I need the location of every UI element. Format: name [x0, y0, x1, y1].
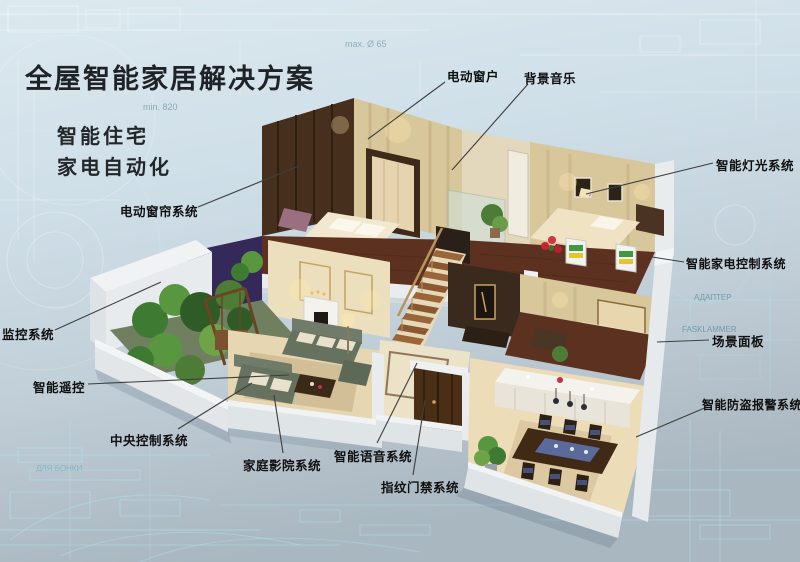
callout-background-music: 背景音乐 [524, 68, 576, 87]
callout-smart-remote: 智能遥控 [33, 377, 85, 396]
watermark-max: max. Ø 65 [345, 39, 387, 49]
framed-art [475, 285, 495, 319]
callout-burglar-alarm: 智能防盗报警系统 [702, 396, 800, 413]
potted-plant [552, 346, 568, 362]
page-title: 全屋智能家居解决方案 [25, 57, 315, 96]
callout-monitoring-system: 监控系统 [2, 324, 54, 343]
callout-electric-window: 电动窗户 [447, 66, 499, 85]
ceiling-light-glow [385, 117, 411, 143]
callout-electric-curtain: 电动窗帘系统 [120, 201, 198, 220]
watermark-min: min. 820 [143, 102, 178, 112]
callout-fingerprint-access: 指纹门禁系统 [381, 477, 459, 496]
smart-home-poster: min. 820 max. Ø 65 АДАПТЕР FASKLAMMER A … [0, 0, 800, 562]
callout-home-theater: 家庭影院系统 [243, 455, 321, 474]
door-handle [432, 400, 436, 404]
bathroom-door [508, 150, 528, 238]
callout-smart-lighting: 智能灯光系统 [716, 155, 794, 174]
callout-smart-voice: 智能语音系统 [334, 446, 412, 465]
watermark-adapter: АДАПТЕР [694, 293, 732, 302]
subtitle-smart-residence: 智能住宅 [57, 120, 149, 149]
callout-scene-panel: 场景面板 [712, 331, 764, 350]
watermark-bonki: ДЛЯ БОНКИ [36, 464, 82, 473]
callout-smart-appliance-control: 智能家电控制系统 [686, 255, 786, 272]
subtitle-appliance-automation: 家电自动化 [57, 151, 172, 180]
callout-central-control: 中央控制系统 [110, 430, 188, 449]
